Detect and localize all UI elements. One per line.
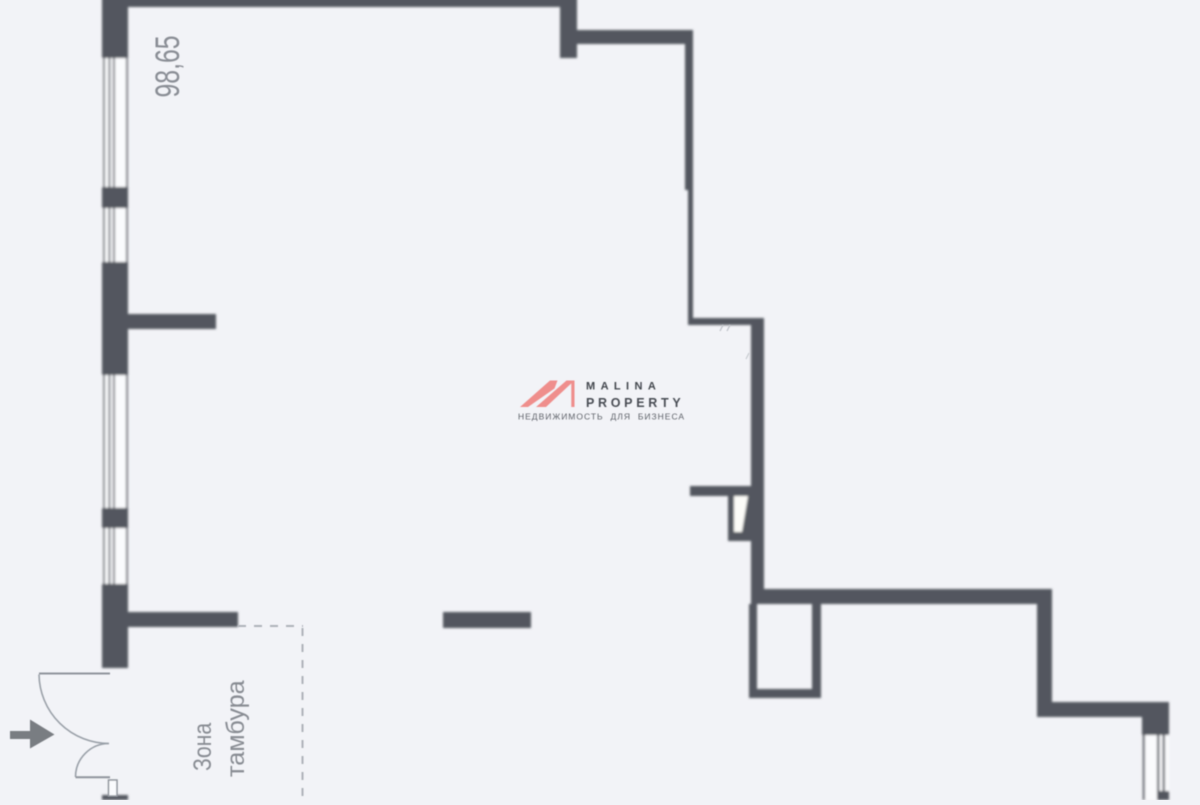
svg-text:тамбура: тамбура xyxy=(222,680,250,777)
svg-text:Зона: Зона xyxy=(188,723,216,771)
svg-text:MALINA: MALINA xyxy=(586,381,661,393)
svg-text:PROPERTY: PROPERTY xyxy=(586,396,684,410)
svg-text:НЕДВИЖИМОСТЬ ДЛЯ БИЗНЕСА: НЕДВИЖИМОСТЬ ДЛЯ БИЗНЕСА xyxy=(518,412,685,422)
svg-text:98,65: 98,65 xyxy=(149,35,187,97)
